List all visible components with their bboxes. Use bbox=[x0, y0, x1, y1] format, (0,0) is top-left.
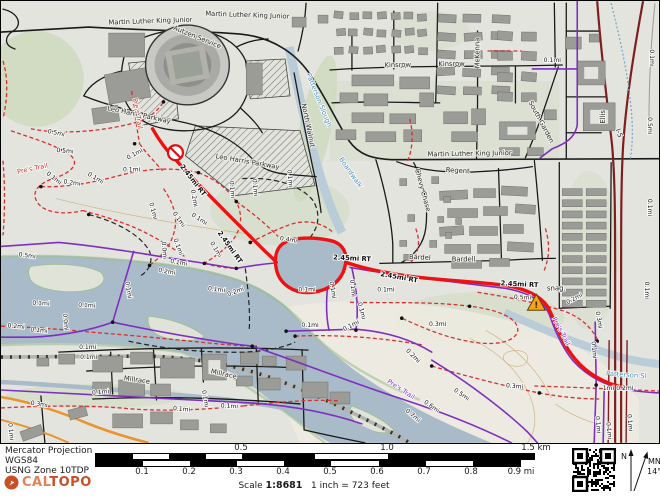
scale-bar-segment bbox=[315, 454, 388, 459]
scale-bar-segment bbox=[96, 454, 133, 459]
scale-ratio: 1:8681 bbox=[266, 480, 303, 491]
caltopo-logo-icon bbox=[4, 475, 19, 490]
scale-bar-segment bbox=[426, 461, 473, 466]
scale-tick-label: 0.5 bbox=[234, 443, 248, 453]
scale-bar-mi bbox=[95, 460, 521, 467]
distance-label: 0.1mi bbox=[646, 199, 653, 217]
distance-label: 0.1mi bbox=[79, 344, 97, 351]
caltopo-print-preview: ! Martin Luther King JuniorMartin Luther… bbox=[0, 0, 660, 497]
map-footer: Mercator Projection WGS84 USNG Zone 10TD… bbox=[0, 444, 660, 497]
scale-tick-label: 0.9 mi bbox=[508, 467, 535, 477]
scale-bar-segment bbox=[169, 454, 206, 459]
distance-label: 0.1mi bbox=[643, 282, 650, 300]
topo-map[interactable]: ! Martin Luther King JuniorMartin Luther… bbox=[1, 1, 659, 443]
declination-value: 14° bbox=[647, 467, 660, 476]
scale-bar-segment bbox=[473, 461, 520, 466]
scale-tick-label: 0.8 bbox=[464, 467, 478, 477]
map-canvas[interactable]: ! Martin Luther King JuniorMartin Luther… bbox=[0, 0, 660, 444]
scale-tick-label: 1.5 km bbox=[521, 443, 550, 453]
street-label: Ellis bbox=[599, 110, 607, 124]
north-arrow: N MN 14° bbox=[618, 447, 660, 495]
true-north-label: N bbox=[621, 452, 627, 461]
distance-label: 0.1mi bbox=[221, 402, 239, 410]
scale-bar-segment bbox=[96, 461, 143, 466]
scale-tick-label: 0.7 bbox=[417, 467, 431, 477]
distance-label: 0.1mi bbox=[648, 49, 655, 67]
scale-tick-label: 0.2 bbox=[182, 467, 196, 477]
distance-label: 1mi 0.2mi bbox=[603, 385, 634, 392]
marker-labels: snag. bbox=[547, 284, 566, 292]
distance-label: 0.3mi bbox=[429, 321, 447, 328]
street-label: Regent bbox=[446, 166, 471, 176]
scale-text: Scale 1:8681 1 inch = 723 feet bbox=[95, 480, 533, 491]
street-label: Kinsrow bbox=[438, 60, 465, 68]
scale-tick-label: 0.6 bbox=[370, 467, 384, 477]
distance-label: 0.1mi bbox=[32, 300, 50, 308]
scale-tick-label: 0.1 bbox=[135, 467, 149, 477]
distance-label: 0.1mi bbox=[544, 57, 562, 64]
caltopo-logo[interactable]: CALTOPO bbox=[4, 475, 92, 490]
scale-tick-label: 0.4 bbox=[276, 467, 290, 477]
scale-bar-segment bbox=[190, 461, 237, 466]
street-label: Martin Luther King Junior bbox=[427, 149, 511, 158]
marker-label: snag. bbox=[547, 284, 566, 292]
distance-label: 0.1mi bbox=[377, 286, 395, 293]
scale-tick-label: 0.3 bbox=[229, 467, 243, 477]
street-label: Kinsrow bbox=[384, 61, 411, 69]
scale-bar-segment bbox=[379, 461, 426, 466]
svg-text:!: ! bbox=[534, 301, 538, 311]
scale-bar-segment bbox=[242, 454, 315, 459]
scale-bar-segment bbox=[388, 454, 534, 459]
scale-bar-segment bbox=[206, 454, 243, 459]
magnetic-north-label: MN bbox=[648, 457, 660, 466]
scale-tick-label: 0.5 bbox=[323, 467, 337, 477]
scale-bar-segment bbox=[284, 461, 331, 466]
street-label: McKenna bbox=[474, 38, 482, 69]
scale-equivalence: 1 inch = 723 feet bbox=[311, 481, 390, 491]
qr-code bbox=[572, 448, 616, 492]
distance-label: 0.1mi bbox=[80, 354, 98, 361]
distance-label: 0.1mi bbox=[301, 322, 319, 329]
street-label: Bardel bbox=[409, 253, 431, 262]
distance-label: 0.1mi bbox=[298, 286, 316, 293]
street-label: Bardell bbox=[452, 255, 476, 263]
datum-label: WGS84 bbox=[5, 456, 38, 466]
scale-tick-label: 1.0 bbox=[380, 443, 394, 453]
scale-bar-segment bbox=[133, 454, 170, 459]
distance-label: 0.1mi bbox=[123, 167, 141, 174]
restriction-marker-icon[interactable] bbox=[168, 145, 183, 160]
distance-label: 0.5mi bbox=[514, 294, 532, 302]
distance-label: 0.1mi bbox=[78, 302, 96, 310]
scale-bar-segment bbox=[237, 461, 284, 466]
scale-bar-segment bbox=[143, 461, 190, 466]
distance-label: 0.5mi bbox=[646, 117, 653, 135]
true-north-arrowhead bbox=[629, 449, 634, 456]
projection-label: Mercator Projection bbox=[5, 446, 92, 456]
scale-bar-km bbox=[95, 453, 535, 460]
scale-bar-segment bbox=[331, 461, 378, 466]
logo-text-topo: TOPO bbox=[49, 475, 92, 490]
logo-text-cal: CAL bbox=[22, 475, 49, 490]
